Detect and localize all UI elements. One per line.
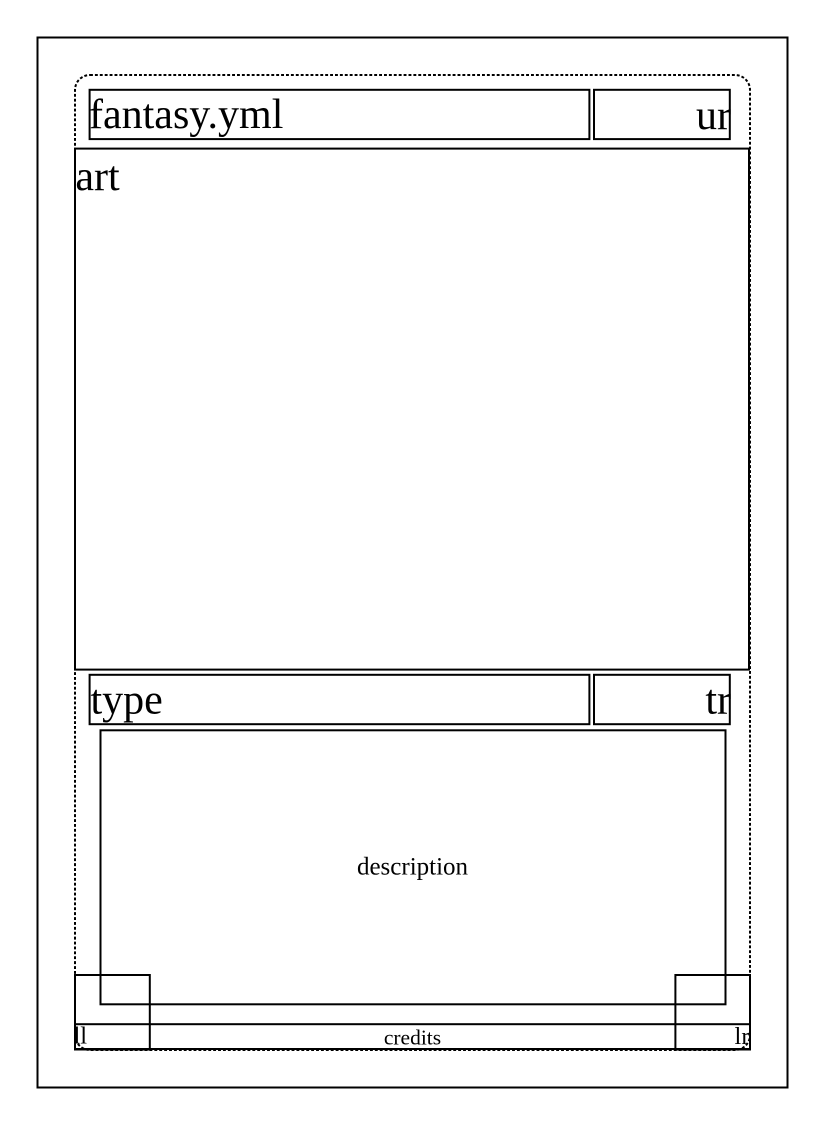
svg-text:lr: lr [735,1023,750,1050]
svg-text:art: art [75,154,120,200]
svg-text:credits: credits [384,1025,441,1049]
svg-text:description: description [357,854,469,881]
svg-text:type: type [91,678,163,724]
svg-text:ur: ur [696,93,731,139]
svg-text:fantasy.yml: fantasy.yml [89,92,283,138]
svg-text:tr: tr [705,678,731,724]
